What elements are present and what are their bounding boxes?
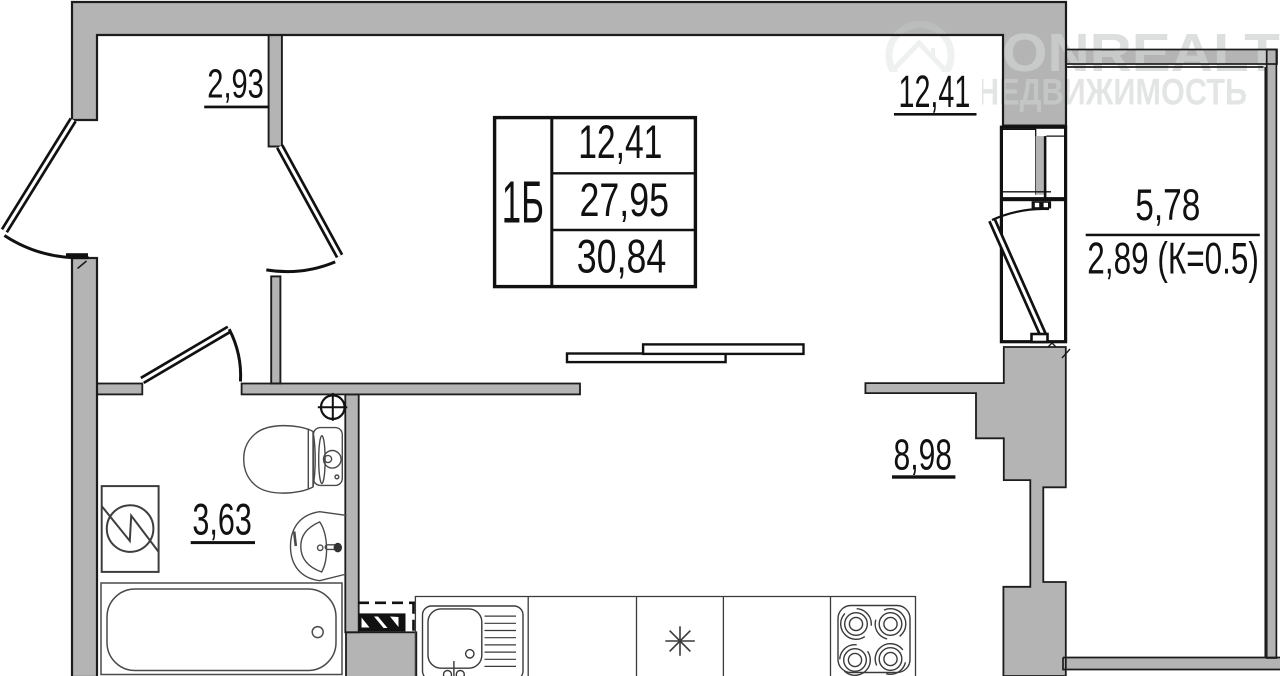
svg-text:12,41: 12,41 <box>899 66 971 117</box>
svg-text:1Б: 1Б <box>502 169 544 236</box>
svg-text:3,63: 3,63 <box>192 495 251 545</box>
svg-text:2,93: 2,93 <box>207 61 263 107</box>
svg-text:12,41: 12,41 <box>578 115 662 168</box>
svg-text:2,89 (К=0.5): 2,89 (К=0.5) <box>1087 234 1259 284</box>
svg-text:НЕДВИЖИМОСТЬ: НЕДВИЖИМОСТЬ <box>977 72 1247 113</box>
svg-text:8,98: 8,98 <box>894 431 953 479</box>
svg-text:27,95: 27,95 <box>580 173 670 226</box>
svg-text:5,78: 5,78 <box>1135 180 1200 230</box>
svg-text:30,84: 30,84 <box>577 230 667 283</box>
